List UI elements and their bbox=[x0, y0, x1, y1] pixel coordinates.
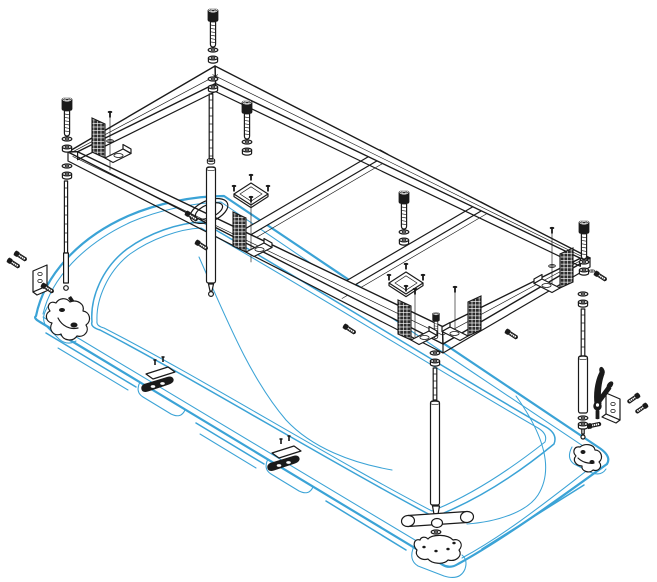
foot-pad-right bbox=[574, 445, 602, 472]
wall-bracket-left bbox=[6, 250, 55, 295]
assembly-diagram bbox=[0, 0, 657, 582]
wall-screw-right-2 bbox=[634, 402, 649, 415]
leg-left bbox=[64, 181, 69, 290]
leg-center bbox=[431, 368, 440, 523]
wall-screw-right-1 bbox=[626, 392, 641, 405]
mounting-plate-2 bbox=[387, 263, 426, 297]
hex-screw-5 bbox=[593, 270, 608, 283]
corner-washer bbox=[589, 270, 595, 272]
leg-right-nut bbox=[578, 422, 587, 429]
foot-pad-left bbox=[46, 296, 89, 340]
wall-screw-left-2 bbox=[13, 250, 28, 263]
foot-pad-front bbox=[414, 535, 461, 563]
hex-screw-4 bbox=[504, 328, 519, 341]
tub-band-lower bbox=[58, 348, 256, 468]
hex-screw-3 bbox=[342, 323, 357, 336]
diagram-page bbox=[0, 0, 657, 582]
mounting-plate-1 bbox=[232, 174, 271, 208]
leg-right-washer bbox=[578, 416, 588, 420]
cap-screw-right bbox=[578, 220, 589, 307]
leg-rear bbox=[207, 94, 216, 296]
leg-rear-nut bbox=[207, 158, 214, 164]
cap-screw-mid bbox=[399, 190, 410, 245]
bathtub-outline bbox=[35, 196, 608, 577]
cap-screw-left bbox=[62, 97, 73, 179]
frame-rail-rear-right bbox=[215, 66, 590, 258]
tub-rim-inner-front-left bbox=[43, 317, 445, 558]
wall-screw-left-1 bbox=[6, 257, 21, 270]
wall-screw-right-3 bbox=[586, 421, 601, 429]
tub-rim-inner-front-right bbox=[462, 462, 598, 558]
corner-bracket-4 bbox=[442, 286, 481, 341]
frame-rail-rear-left bbox=[68, 66, 216, 152]
tub-rim-outer bbox=[35, 196, 608, 567]
cap-screw-mid-left bbox=[242, 100, 253, 155]
cap-screw-rear bbox=[208, 8, 219, 92]
leg-right bbox=[578, 309, 588, 439]
